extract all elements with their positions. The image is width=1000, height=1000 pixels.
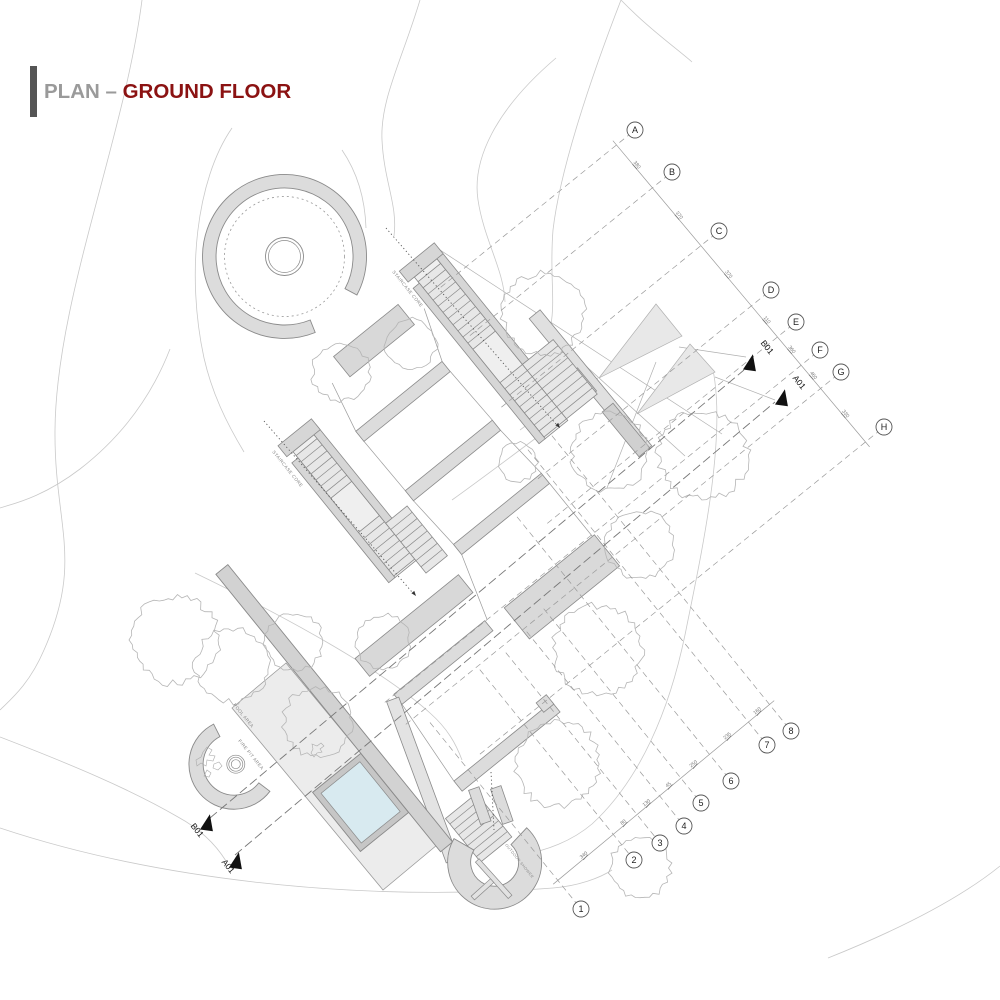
svg-text:6: 6 (728, 776, 733, 786)
svg-text:A: A (632, 125, 638, 135)
svg-text:7: 7 (764, 740, 769, 750)
svg-text:C: C (716, 226, 723, 236)
svg-text:2: 2 (631, 855, 636, 865)
svg-text:1: 1 (578, 904, 583, 914)
svg-text:E: E (793, 317, 799, 327)
svg-text:8: 8 (788, 726, 793, 736)
svg-text:5: 5 (698, 798, 703, 808)
svg-text:F: F (817, 345, 823, 355)
svg-text:4: 4 (681, 821, 686, 831)
svg-text:3: 3 (657, 838, 662, 848)
svg-text:B: B (669, 167, 675, 177)
svg-text:H: H (881, 422, 888, 432)
svg-text:G: G (837, 367, 844, 377)
svg-text:D: D (768, 285, 775, 295)
